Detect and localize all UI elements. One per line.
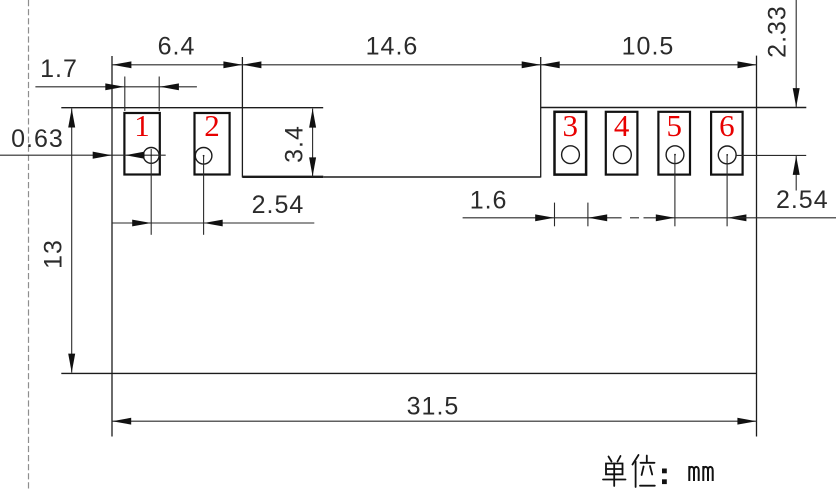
svg-text:2: 2 (204, 108, 220, 143)
svg-text:2.54: 2.54 (252, 191, 305, 219)
svg-text:31.5: 31.5 (407, 393, 460, 421)
svg-text:0.63: 0.63 (11, 125, 64, 153)
svg-text:1: 1 (134, 108, 150, 143)
svg-text:2.33: 2.33 (764, 5, 792, 58)
svg-text:4: 4 (614, 108, 630, 143)
svg-text:10.5: 10.5 (622, 33, 675, 61)
svg-text:3.4: 3.4 (281, 125, 309, 163)
svg-text:1.7: 1.7 (40, 55, 78, 83)
svg-text:1.6: 1.6 (470, 187, 508, 215)
svg-text:6.4: 6.4 (158, 33, 196, 61)
svg-text:3: 3 (563, 108, 579, 143)
svg-text:13: 13 (40, 239, 68, 269)
svg-text:14.6: 14.6 (366, 33, 419, 61)
svg-text:6: 6 (719, 108, 735, 143)
svg-text:2.54: 2.54 (776, 186, 829, 214)
svg-text:5: 5 (666, 108, 682, 143)
